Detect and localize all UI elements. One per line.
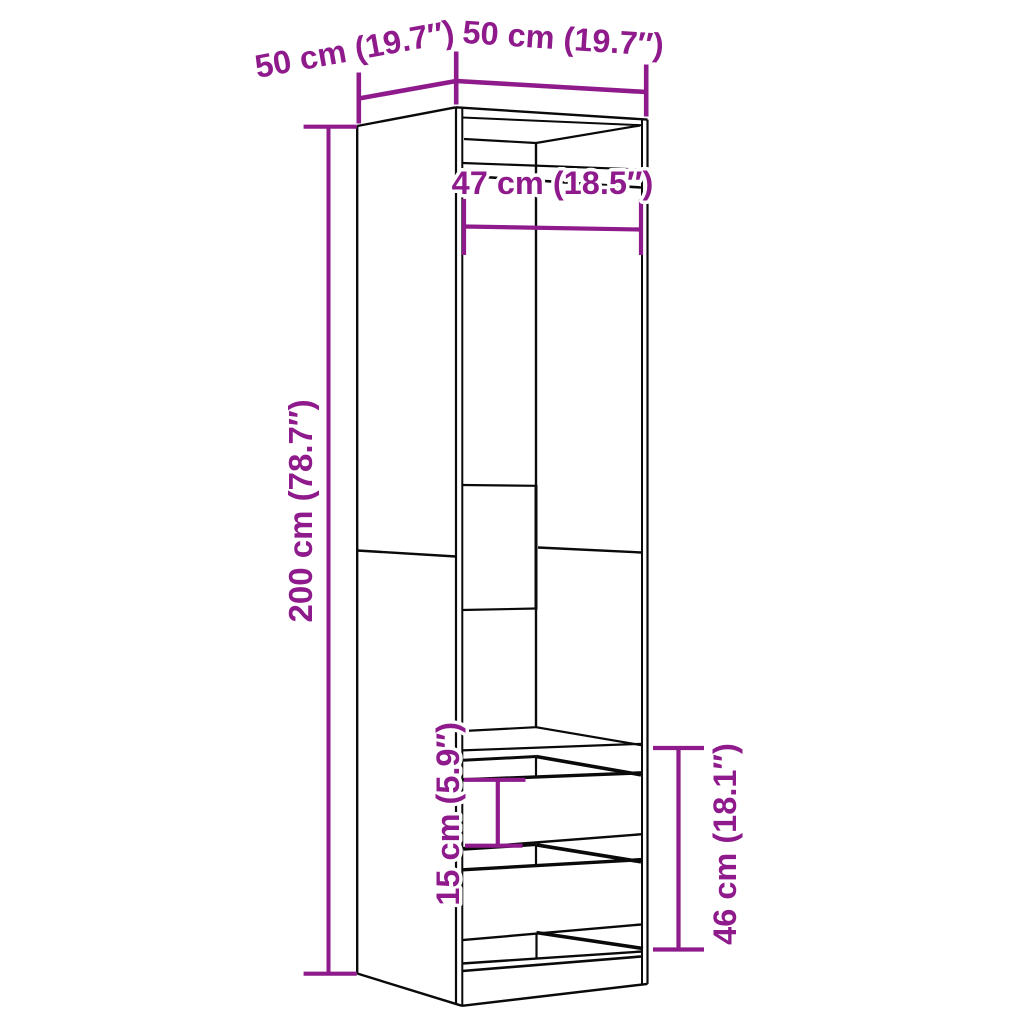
svg-text:46 cm (18.1″): 46 cm (18.1″) [707, 743, 743, 945]
svg-text:47 cm (18.5″): 47 cm (18.5″) [452, 165, 654, 201]
svg-text:15 cm (5.9″): 15 cm (5.9″) [430, 722, 466, 906]
svg-text:200 cm (78.7″): 200 cm (78.7″) [282, 399, 319, 622]
